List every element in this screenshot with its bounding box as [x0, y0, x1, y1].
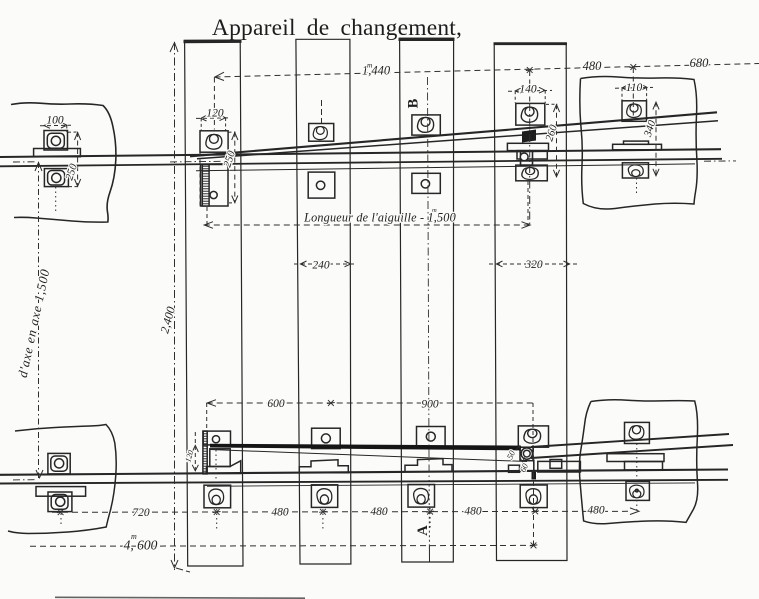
svg-text:480: 480 — [464, 506, 482, 518]
svg-text:680: 680 — [690, 56, 710, 70]
svg-text:110: 110 — [626, 82, 643, 94]
svg-text:600: 600 — [267, 398, 285, 410]
svg-text:4, 600: 4, 600 — [124, 538, 158, 553]
svg-text:720: 720 — [132, 507, 150, 519]
svg-text:120: 120 — [206, 108, 224, 120]
svg-text:100: 100 — [46, 115, 64, 127]
svg-text:480: 480 — [583, 59, 603, 73]
svg-text:240: 240 — [312, 260, 330, 272]
svg-text:480: 480 — [370, 506, 388, 518]
svg-text:A: A — [415, 525, 431, 536]
svg-text:Longueur de l'aiguille - 1,500: Longueur de l'aiguille - 1,500 — [303, 211, 456, 225]
svg-text:320: 320 — [524, 259, 543, 271]
svg-text:Appareil de changement,: Appareil de changement, — [212, 15, 462, 41]
svg-text:B: B — [406, 98, 422, 108]
svg-text:140: 140 — [519, 84, 537, 96]
svg-text:480: 480 — [271, 507, 289, 519]
svg-text:m: m — [367, 61, 373, 70]
svg-text:480: 480 — [587, 505, 605, 517]
svg-text:900: 900 — [421, 399, 439, 411]
svg-text:m: m — [131, 532, 137, 541]
